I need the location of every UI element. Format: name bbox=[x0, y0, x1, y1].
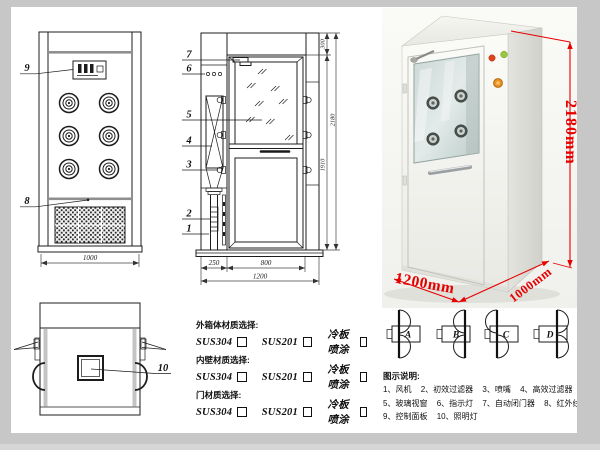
glass-window bbox=[235, 62, 297, 144]
dim-inner-height-value: 1910 bbox=[320, 158, 327, 171]
door-hinge-bottom bbox=[403, 176, 407, 185]
legend-item: 9、控制面板 bbox=[383, 412, 427, 421]
legend-item: 5、玻璃视窗 bbox=[383, 399, 427, 408]
dim-top-value: 300 bbox=[320, 38, 327, 49]
door-config-b: B bbox=[437, 310, 470, 358]
dim-side-value: 250 bbox=[209, 259, 220, 267]
legend-row: 5、玻璃视窗 6、指示灯 7、自动闭门器 8、红外线感应器 bbox=[383, 397, 585, 411]
config-a-label: A bbox=[404, 331, 411, 341]
legend-row: 9、控制面板 10、照明灯 bbox=[383, 410, 585, 424]
material-checkbox[interactable] bbox=[237, 372, 247, 382]
material-checkbox[interactable] bbox=[360, 372, 367, 382]
callout-2-label: 2 bbox=[185, 209, 192, 220]
material-option-label: SUS201 bbox=[262, 337, 298, 348]
material-option-label: SUS304 bbox=[196, 372, 232, 383]
legend-item: 2、初效过滤器 bbox=[421, 385, 473, 394]
door-config-c: C bbox=[485, 310, 518, 358]
material-checkbox[interactable] bbox=[303, 337, 313, 347]
legend-panel: 图示说明: 1、风机 2、初效过滤器 3、喷嘴 4、高效过滤器 5、玻璃视窗 6… bbox=[383, 370, 585, 424]
dim-total-height-value: 2180 bbox=[330, 113, 337, 126]
material-group-inner-wall: 内壁材质选择: SUS304 SUS201 冷板喷涂 bbox=[196, 352, 382, 386]
frame-left bbox=[0, 0, 11, 450]
cabinet-side-face bbox=[508, 28, 542, 292]
glass-hatch-marks bbox=[246, 69, 294, 140]
door-config-diagrams: A B C D bbox=[387, 310, 569, 358]
legend-item: 10、照明灯 bbox=[437, 412, 478, 421]
section-callouts: 7 6 5 4 3 2 1 bbox=[182, 50, 262, 235]
plan-view: 10 bbox=[14, 303, 171, 415]
legend-item: 1、风机 bbox=[383, 385, 411, 394]
green-indicator-light bbox=[501, 51, 508, 58]
legend-row: 1、风机 2、初效过滤器 3、喷嘴 4、高效过滤器 bbox=[383, 383, 585, 397]
callout-4-label: 4 bbox=[185, 136, 191, 147]
front-elevation-view: 1000 9 8 bbox=[20, 32, 142, 267]
nozzle-array bbox=[60, 94, 119, 179]
prefilter-stack bbox=[211, 207, 219, 231]
legend-title: 图示说明: bbox=[383, 370, 585, 383]
control-panel bbox=[73, 61, 106, 79]
legend-item: 7、自动闭门器 bbox=[482, 399, 534, 408]
material-option-label: 冷板喷涂 bbox=[327, 362, 355, 392]
config-d-label: D bbox=[546, 331, 554, 341]
frame-right bbox=[577, 0, 600, 450]
right-door-handle-arc bbox=[135, 363, 147, 390]
dim-width-value: 1200 bbox=[253, 273, 268, 281]
material-option-label: 冷板喷涂 bbox=[327, 327, 355, 357]
callout-8-label: 8 bbox=[24, 196, 30, 207]
legend-item: 6、指示灯 bbox=[437, 399, 473, 408]
side-section-view: 250 800 1200 300 1910 2180 7 6 5 4 3 bbox=[182, 33, 340, 285]
machinery-column bbox=[206, 72, 226, 250]
material-option-label: 冷板喷涂 bbox=[327, 397, 355, 427]
materials-panel: 外箱体材质选择: SUS304 SUS201 冷板喷涂 内壁材质选择: SUS3… bbox=[196, 317, 382, 422]
legend-item: 4、高效过滤器 bbox=[520, 385, 572, 394]
section-height-dimensions: 300 1910 2180 bbox=[306, 33, 340, 250]
door-section bbox=[229, 57, 303, 248]
legend-item: 3、喷嘴 bbox=[482, 385, 510, 394]
material-option-label: SUS304 bbox=[196, 407, 232, 418]
frame-top bbox=[0, 0, 600, 7]
config-b-label: B bbox=[452, 331, 459, 341]
top-divider-band bbox=[48, 51, 132, 54]
material-checkbox[interactable] bbox=[303, 407, 313, 417]
material-group-outer-box: 外箱体材质选择: SUS304 SUS201 冷板喷涂 bbox=[196, 317, 382, 351]
red-indicator-light bbox=[489, 55, 495, 61]
front-width-dimension: 1000 bbox=[41, 254, 139, 267]
front-width-value: 1000 bbox=[83, 254, 98, 262]
dim-door-value: 800 bbox=[261, 259, 272, 267]
material-checkbox[interactable] bbox=[237, 407, 247, 417]
config-c-label: C bbox=[503, 331, 510, 341]
section-bottom-dimensions: 250 800 1200 bbox=[201, 257, 319, 285]
material-option-label: SUS201 bbox=[262, 407, 298, 418]
frame-bottom-light bbox=[0, 444, 600, 450]
door-config-d: D bbox=[534, 310, 569, 358]
door-hinge-top bbox=[403, 84, 407, 93]
callout-control-panel: 9 bbox=[20, 63, 73, 74]
page: { "meta": { "description": "Air shower c… bbox=[0, 0, 600, 450]
material-option-label: SUS304 bbox=[196, 337, 232, 348]
callout-9-label: 9 bbox=[24, 63, 30, 74]
material-option-label: SUS201 bbox=[262, 372, 298, 383]
callout-6-label: 6 bbox=[186, 64, 192, 75]
material-checkbox[interactable] bbox=[303, 372, 313, 382]
material-checkbox[interactable] bbox=[237, 337, 247, 347]
callout-5-label: 5 bbox=[186, 110, 191, 121]
product-photo: 2180mm 1200mm 1000mm bbox=[382, 8, 579, 308]
material-checkbox[interactable] bbox=[360, 407, 367, 417]
callout-3-label: 3 bbox=[185, 160, 191, 171]
callout-1-label: 1 bbox=[186, 224, 191, 235]
material-checkbox[interactable] bbox=[360, 337, 367, 347]
left-door-handle-arc bbox=[33, 363, 45, 390]
return-air-grille bbox=[55, 207, 125, 243]
door-config-a: A bbox=[387, 310, 420, 358]
callout-10-label: 10 bbox=[158, 363, 169, 374]
callout-7-label: 7 bbox=[186, 50, 192, 61]
door-closer bbox=[233, 58, 251, 66]
material-group-door: 门材质选择: SUS304 SUS201 冷板喷涂 bbox=[196, 387, 382, 421]
